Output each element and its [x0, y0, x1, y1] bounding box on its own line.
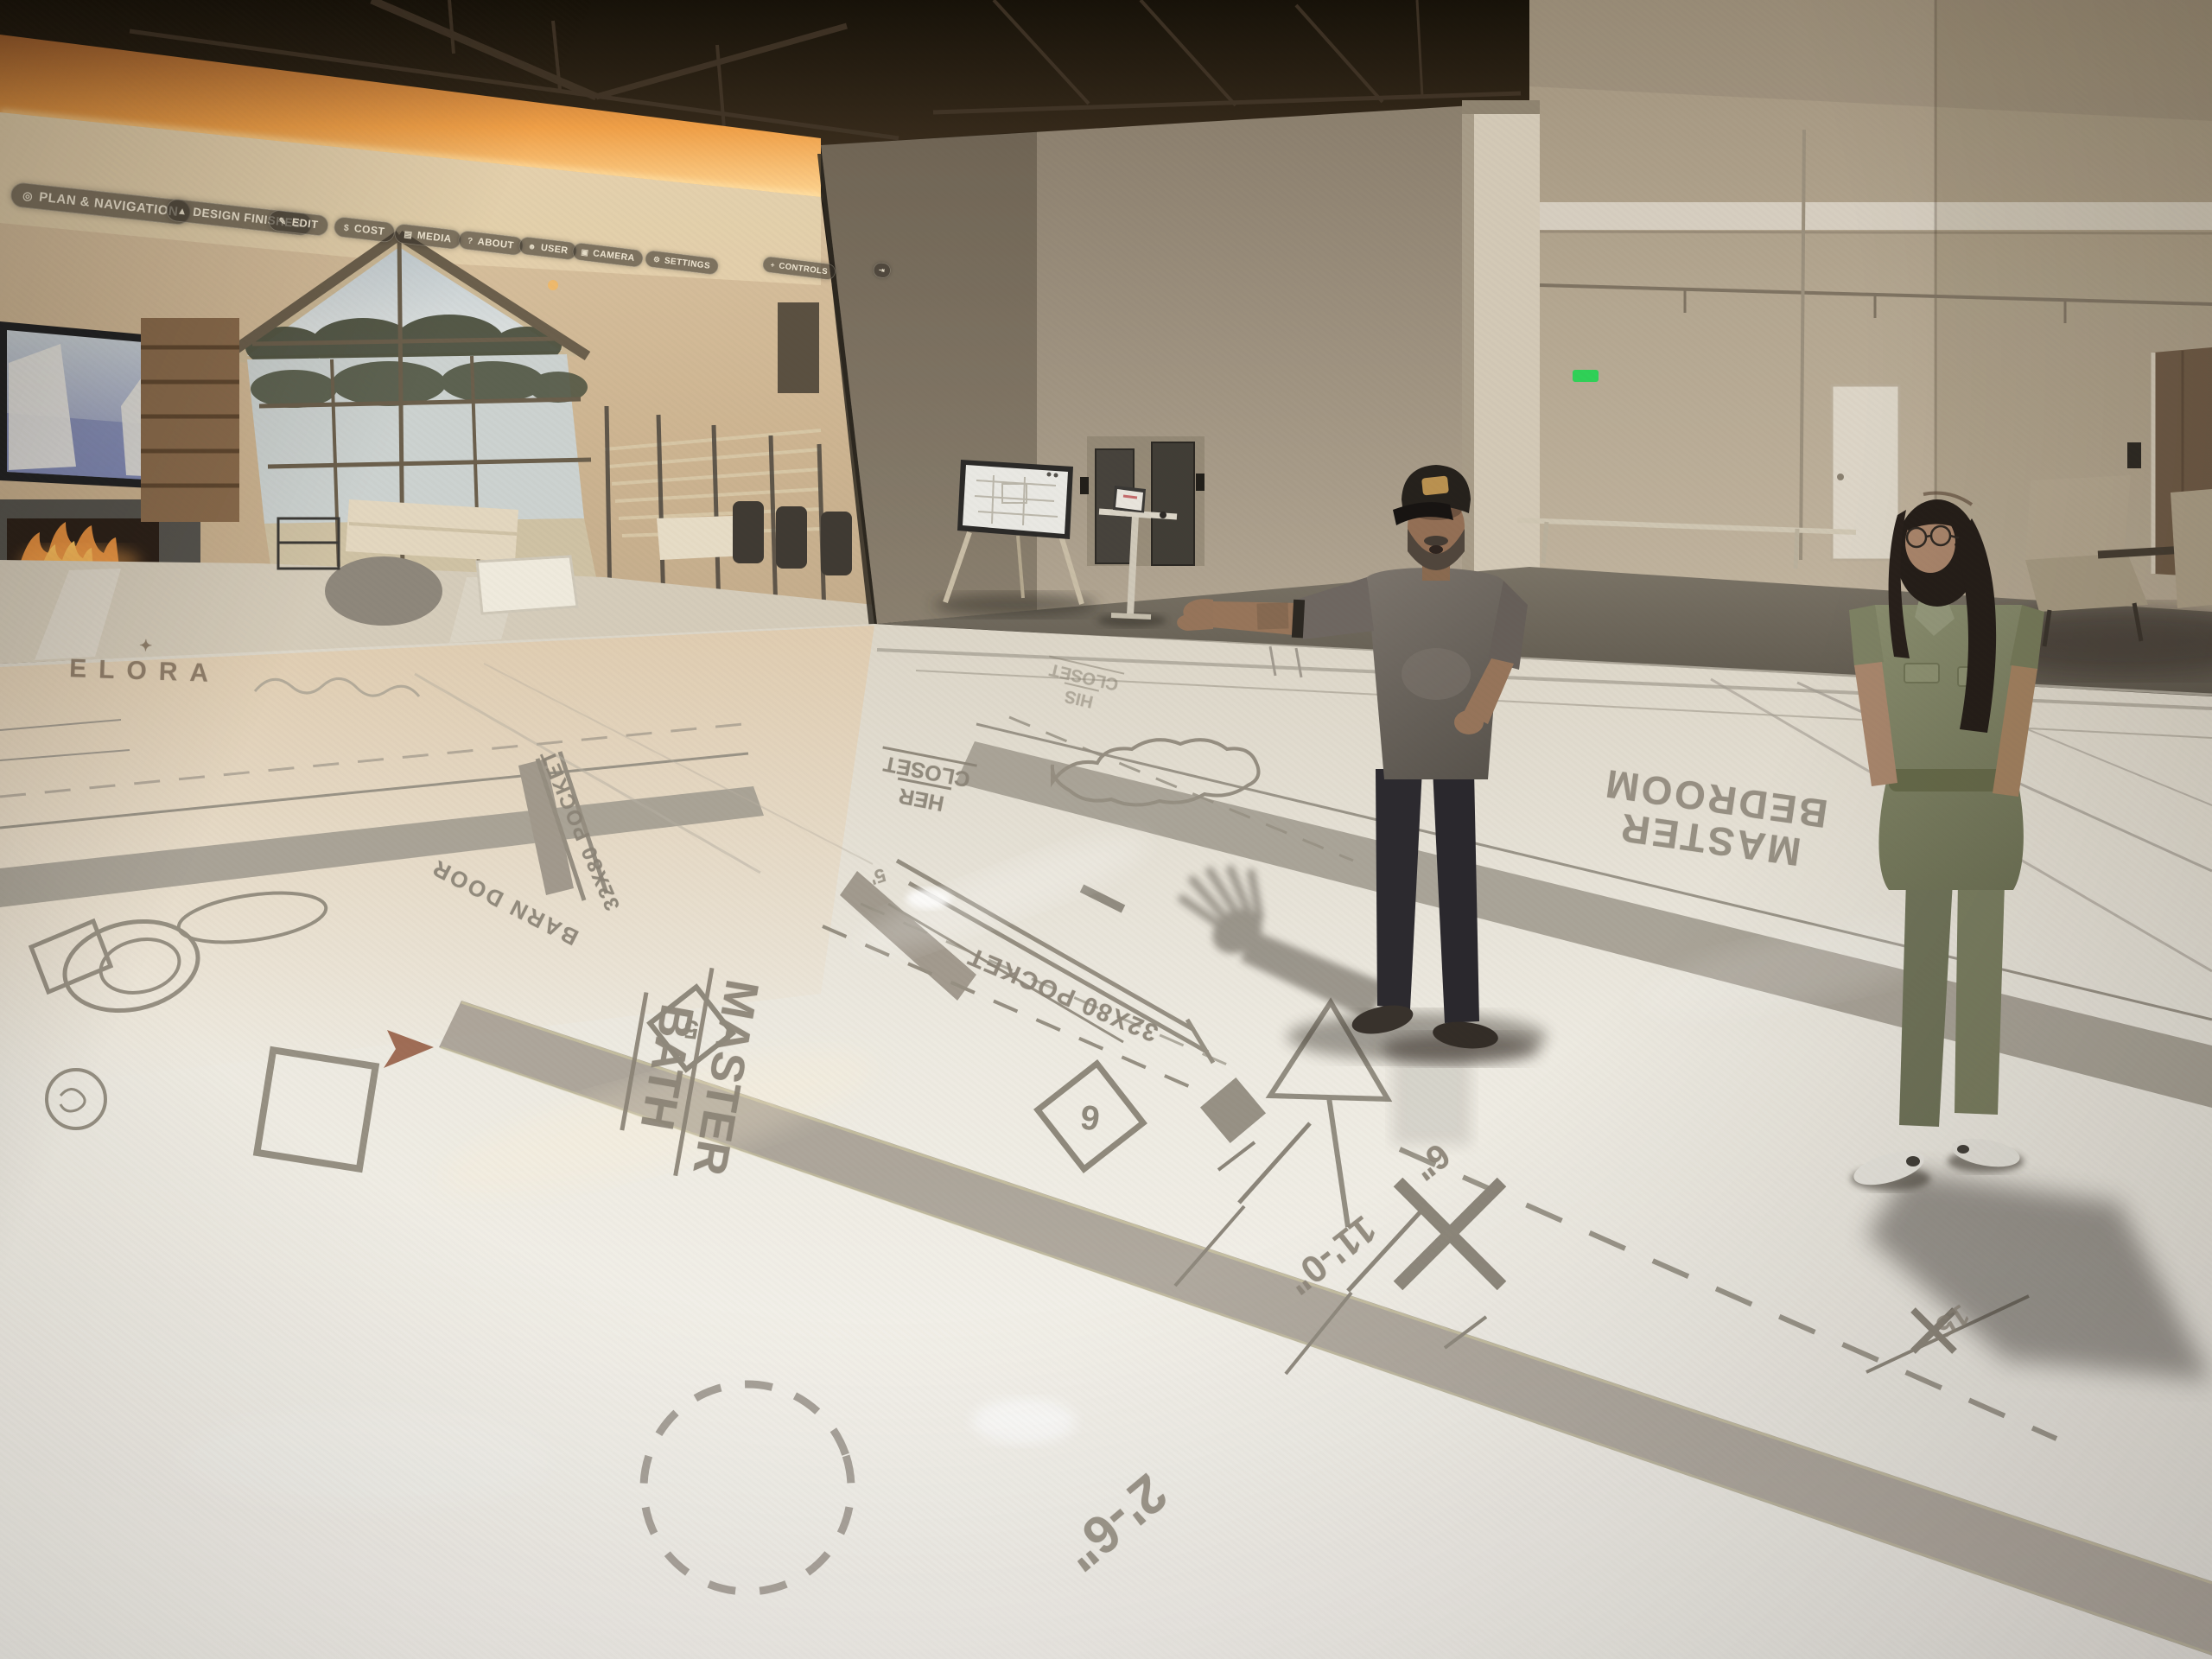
cap-logo-patch [1421, 475, 1449, 495]
interior-door-right [1152, 442, 1194, 565]
render-coffee-table [477, 556, 577, 613]
woman-leg-right [1955, 881, 2005, 1115]
chair-back [2025, 475, 2131, 562]
render-ottoman [325, 556, 442, 626]
wall-plaque [2127, 442, 2141, 468]
pillar [1462, 100, 1540, 574]
scene-canvas [0, 0, 2212, 1659]
man-mouth [1429, 545, 1443, 554]
podium-base [1111, 615, 1151, 617]
wall-art [778, 302, 819, 393]
door-sign-right [1196, 474, 1205, 491]
showroom-photo: ◎PLAN & NAVIGATION ▲DESIGN FINISHES ✎EDI… [0, 0, 2212, 1659]
forearm-tattoo [1256, 602, 1288, 629]
tshirt-logo [1402, 648, 1471, 700]
man-hand-left [1454, 710, 1484, 734]
render-sofa [346, 499, 518, 562]
chest-pocket-left [1904, 664, 1939, 683]
exit-light [1573, 370, 1599, 382]
presentation-clicker [1160, 512, 1166, 518]
chair-armrest [2098, 550, 2186, 555]
chair-seat [2025, 553, 2148, 612]
wrist-watch [1292, 600, 1305, 639]
door-sign-left [1080, 477, 1089, 494]
chair-partial [2171, 489, 2212, 608]
